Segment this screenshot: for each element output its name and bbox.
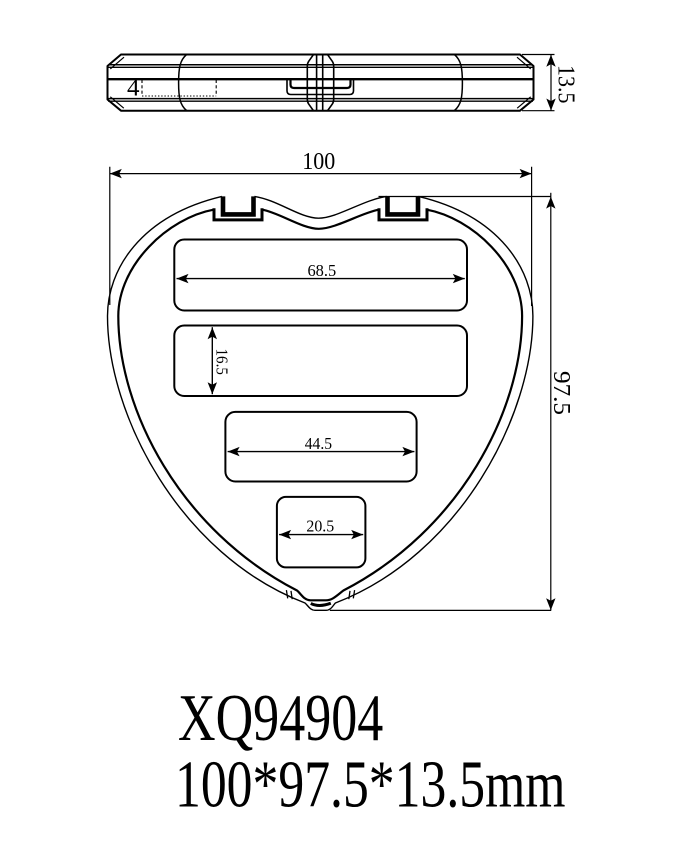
svg-text:20.5: 20.5 [306, 516, 334, 535]
svg-text:100*97.5*13.5mm: 100*97.5*13.5mm [175, 747, 566, 821]
svg-text:97.5: 97.5 [548, 371, 574, 415]
svg-text:16.5: 16.5 [212, 349, 231, 375]
svg-text:4: 4 [127, 75, 140, 102]
svg-text:100: 100 [302, 148, 335, 175]
svg-text:13.5: 13.5 [553, 65, 579, 104]
svg-text:68.5: 68.5 [307, 261, 336, 280]
svg-text:XQ94904: XQ94904 [178, 681, 383, 755]
svg-text:44.5: 44.5 [305, 434, 332, 453]
